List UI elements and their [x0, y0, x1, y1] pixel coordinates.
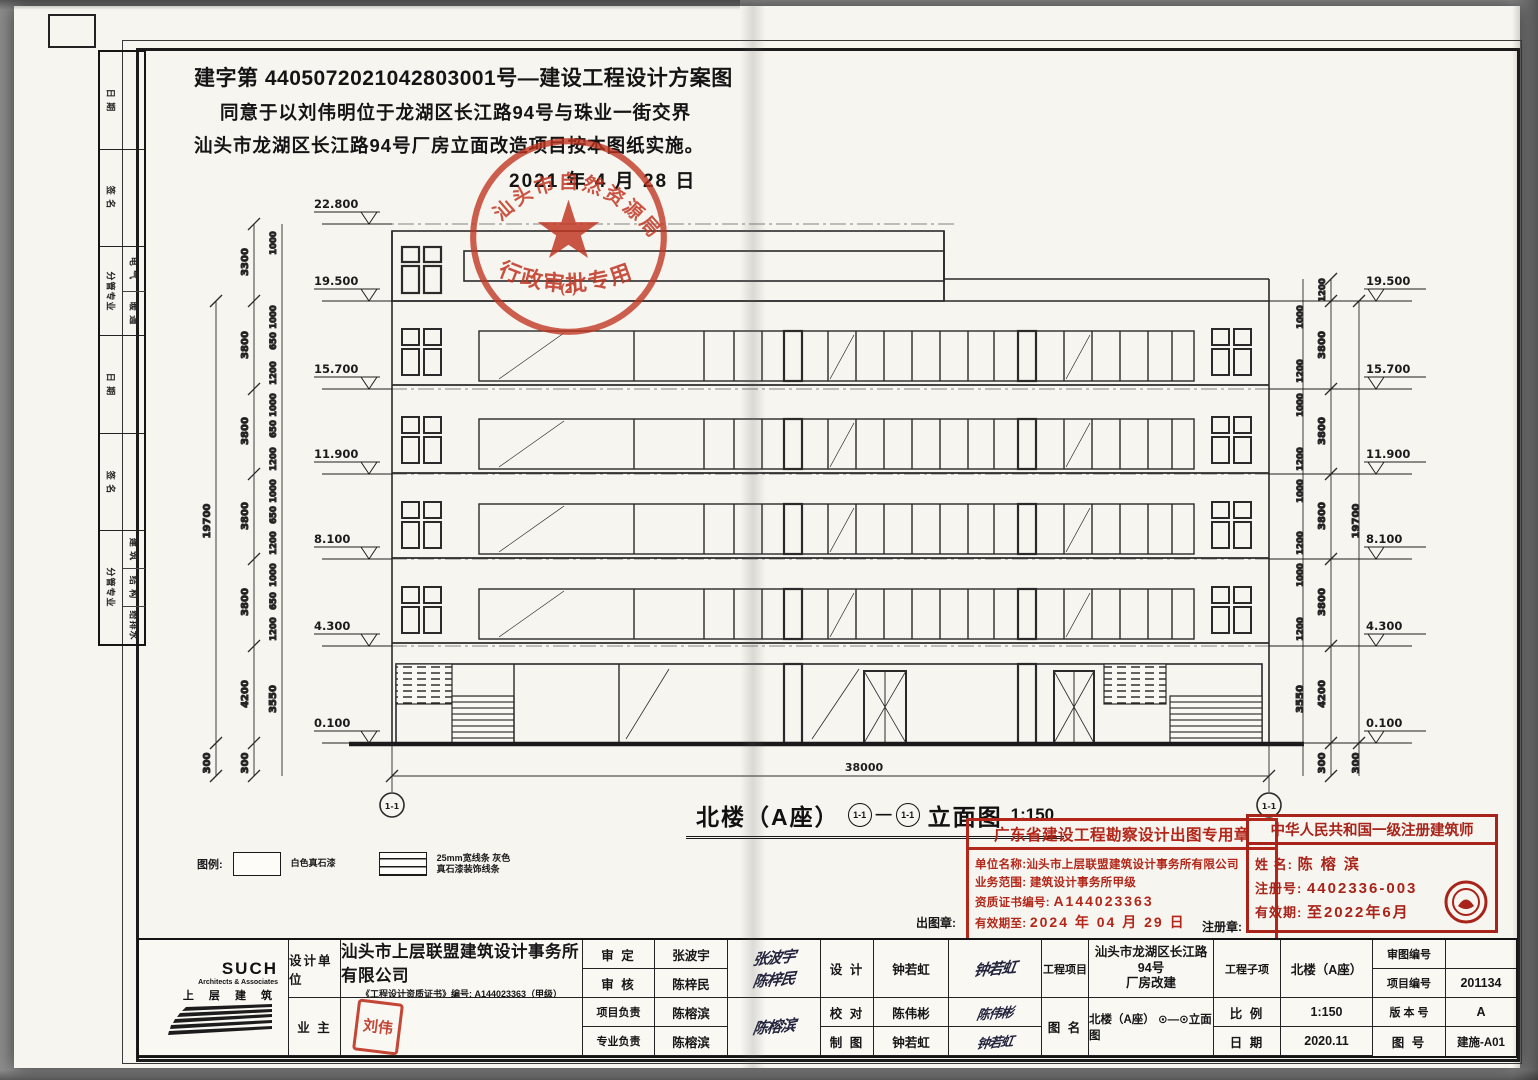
caption-name: 北楼（A座）	[696, 798, 840, 832]
arch-row-value: 陈 榕 滨	[1298, 856, 1361, 873]
review-no-label: 审图编号	[1373, 940, 1446, 969]
chutuzhang-label: 出图章:	[916, 914, 956, 931]
dim-text: 4200	[1317, 680, 1328, 708]
shending-name: 张波宇	[655, 940, 728, 969]
legend-title: 图例:	[197, 856, 223, 872]
sheet-no-label: 图 号	[1373, 1027, 1446, 1056]
dim-text: 1200	[269, 531, 279, 555]
level-text: 15.700	[314, 362, 358, 376]
level-markers-left: 22.800 19.500 15.700 11.900 8.100 4.300 …	[314, 197, 392, 743]
dim-text: 3800	[1317, 417, 1328, 445]
shenhe-name: 陈梓民	[655, 969, 728, 998]
axis-bubble-icon: 1-1	[896, 803, 920, 827]
strip-group-sign2: 签 名	[100, 434, 144, 532]
strip-label: 分管专业	[105, 568, 118, 608]
stamp-star-icon	[538, 200, 600, 258]
design-unit-label: 设计单位	[289, 940, 341, 998]
legend-label: 白色真石漆	[291, 858, 369, 869]
dim-text: 1000	[1296, 393, 1306, 417]
dim-text: 300	[1317, 753, 1328, 774]
strip-label: 签 名	[105, 186, 118, 210]
strip-group-date2: 日 期	[100, 336, 144, 434]
dim-text: 300	[202, 753, 213, 774]
figure-label: 图 名	[1042, 998, 1089, 1056]
elevation-drawing: 3300 3800 3800 3800 3800 4200 19700 3550…	[164, 191, 1434, 831]
caption-dash: —	[876, 806, 892, 824]
firm-logo: SUCH Architects & Associates 上 层 建 筑	[139, 940, 289, 1056]
project-no-value: 201134	[1446, 969, 1516, 998]
strip-item: 结 构	[128, 576, 141, 600]
gd-row-key: 有效期至:	[975, 918, 1026, 930]
dim-text: 1200	[1318, 278, 1328, 302]
dim-text: 300	[240, 753, 251, 774]
gd-stamp-title: 广东省建设工程勘察设计出图专用章	[966, 818, 1278, 850]
title-block: SUCH Architects & Associates 上 层 建 筑 设计单…	[137, 938, 1518, 1058]
version-value: A	[1446, 998, 1516, 1027]
logo-cn-text: 上 层 建 筑	[183, 987, 278, 1003]
scan-edge-top	[0, 0, 740, 10]
owner-label: 业 主	[289, 998, 341, 1056]
level-text: 0.100	[1366, 716, 1402, 730]
dim-text: 650	[269, 332, 279, 350]
xiangmu-label: 项目负责	[583, 998, 655, 1027]
signature: 钟若虹	[972, 956, 1017, 981]
arch-row-key: 有效期:	[1255, 905, 1302, 920]
gd-row-value: 汕头市上层联盟建筑设计事务所有限公司	[1026, 859, 1238, 871]
strip-group-sign: 签 名	[100, 150, 144, 248]
approval-line2: 同意于以刘伟明位于龙湖区长江路94号与珠业一街交界	[194, 99, 834, 125]
zhuanye-label: 专业负责	[583, 1027, 655, 1056]
registered-architect-stamp: 中华人民共和国一级注册建筑师 姓 名: 陈 榕 滨 注册号: 4402336-0…	[1246, 814, 1498, 933]
subproject-label: 工程子项	[1214, 940, 1281, 998]
strip-group-discipline-me: 分管专业 电 气 暖 通	[100, 247, 144, 336]
gd-row-key: 业务范围:	[975, 877, 1026, 889]
signature: 陈伟彬	[976, 1001, 1015, 1023]
shending-label: 审 定	[583, 940, 655, 969]
strip-item: 暖 通	[128, 302, 141, 326]
strip-label: 签 名	[105, 470, 118, 494]
zhuanye-name: 陈榕滨	[655, 1027, 728, 1056]
level-text: 15.700	[1366, 362, 1410, 376]
dim-text: 1000	[269, 393, 279, 417]
figure-value: 北楼（A座） ⊙—⊙立面图	[1089, 998, 1214, 1056]
dim-text: 1000	[269, 479, 279, 503]
architect-seal-emblem-icon	[1443, 879, 1489, 925]
dim-text: 1000	[1296, 305, 1306, 329]
left-dimensions: 3300 3800 3800 3800 3800 4200 19700 3550…	[202, 218, 282, 782]
version-label: 版 本 号	[1373, 998, 1446, 1027]
date-value: 2020.11	[1281, 1027, 1373, 1056]
level-text: 19.500	[314, 274, 358, 288]
date-label: 日 期	[1214, 1027, 1281, 1056]
svg-text:行政审批专用章: 行政审批专用章	[466, 134, 636, 296]
level-text: 8.100	[314, 532, 350, 546]
logo-building-icon	[168, 1003, 278, 1037]
dim-text: 1200	[1296, 531, 1306, 555]
gd-row-value: 2024 年 04 月 29 日	[1030, 914, 1186, 930]
floor-bands	[392, 329, 1269, 643]
dim-text: 650	[269, 592, 279, 610]
dim-text: 3800	[240, 417, 251, 445]
legend-label: 25mm宽线条 灰色真石漆装饰线条	[437, 853, 515, 876]
stamp-arc-bottom-text: 行政审批专用章	[466, 134, 636, 296]
strip-item: 电 气	[128, 257, 141, 281]
material-legend: 图例: 白色真石漆 25mm宽线条 灰色真石漆装饰线条	[197, 852, 515, 876]
design-unit-cert: 《工程设计资质证书》编号: A144023363（甲级）	[361, 987, 562, 999]
owner-cell: 刘伟	[341, 998, 583, 1056]
subproject-value: 北楼（A座）	[1281, 940, 1373, 998]
dim-text: 1200	[269, 361, 279, 385]
dim-text: 1000	[269, 563, 279, 587]
dim-text: 19700	[202, 504, 213, 539]
axis-bubble-text: 1-1	[1262, 802, 1277, 811]
dim-text: 1200	[1296, 617, 1306, 641]
approval-number-line: 建字第 4405072021042803001号—建设工程设计方案图	[194, 62, 834, 92]
sheji-label: 设 计	[821, 940, 874, 998]
owner-red-seal: 刘伟	[352, 998, 404, 1055]
dim-text: 300	[1351, 753, 1362, 774]
legend-swatch-plain	[233, 852, 281, 876]
project-line2: 厂房改建	[1089, 976, 1213, 992]
review-no-value	[1446, 940, 1516, 969]
signature: 钟若虹	[976, 1030, 1015, 1052]
jiaodui-name: 陈伟彬	[874, 998, 949, 1027]
level-text: 11.900	[314, 447, 358, 461]
dim-text: 38000	[845, 761, 884, 774]
dim-text: 650	[269, 506, 279, 524]
shenhe-label: 审 核	[583, 969, 655, 998]
xiangmu-name: 陈榕滨	[655, 998, 728, 1027]
dim-text: 1000	[1296, 479, 1306, 503]
level-text: 22.800	[314, 197, 358, 211]
stamp-sub-mark: (2)	[560, 281, 576, 296]
admin-approval-round-stamp-icon: 汕头市自然资源局 行政审批专用章 (2)	[466, 134, 671, 339]
scale-value: 1:150	[1281, 998, 1373, 1027]
strip-group-date: 日 期	[100, 52, 144, 150]
design-unit-name: 汕头市上层联盟建筑设计事务所有限公司	[341, 940, 582, 986]
logo-brand-text: SUCH	[222, 959, 278, 979]
project-no-label: 项目编号	[1373, 969, 1446, 998]
strip-label: 分管专业	[105, 271, 118, 311]
level-text: 0.100	[314, 716, 350, 730]
signature-cell: 钟若虹	[949, 1027, 1042, 1056]
arch-row-value: 4402336-003	[1307, 880, 1417, 897]
dim-text: 3800	[1317, 502, 1328, 530]
dim-text: 3300	[240, 248, 251, 276]
dim-text: 4200	[240, 680, 251, 708]
zhitu-label: 制 图	[821, 1027, 874, 1056]
dim-text: 1000	[269, 231, 279, 255]
dim-text: 1200	[1296, 447, 1306, 471]
dim-text: 1200	[269, 617, 279, 641]
jiaodui-label: 校 对	[821, 998, 874, 1027]
project-label: 工程项目	[1042, 940, 1089, 998]
strip-label: 日 期	[105, 373, 118, 397]
level-text: 8.100	[1366, 532, 1402, 546]
dim-text: 1200	[269, 447, 279, 471]
dim-text: 1000	[1296, 563, 1306, 587]
design-unit-cell: 汕头市上层联盟建筑设计事务所有限公司 《工程设计资质证书》编号: A144023…	[341, 940, 583, 998]
scan-edge-bottom	[0, 1070, 1538, 1080]
level-text: 11.900	[1366, 447, 1410, 461]
dim-text: 19700	[1351, 504, 1362, 539]
strip-label: 日 期	[105, 88, 118, 112]
signature-cell: 陈伟彬	[949, 998, 1042, 1027]
strip-group-discipline-asp: 分管专业 建 筑 结 构 给排水	[100, 531, 144, 644]
arch-stamp-title: 中华人民共和国一级注册建筑师	[1246, 814, 1498, 845]
ground-floor	[349, 664, 1304, 744]
logo-sub-text: Architects & Associates	[198, 979, 278, 986]
level-text: 4.300	[1366, 619, 1402, 633]
right-dimensions: 1200 3800 3800 3800 3800 4200 19700 3550…	[1295, 273, 1365, 782]
legend-swatch-lined	[379, 852, 427, 876]
level-markers-right: 19.500 15.700 11.900 8.100 4.300 0.100	[1269, 274, 1426, 743]
axis-bubble-text: 1-1	[385, 802, 400, 811]
zhitu-name: 钟若虹	[874, 1027, 949, 1056]
project-value: 汕头市龙湖区长江路94号厂房改建	[1089, 940, 1214, 998]
gd-design-issue-stamp: 广东省建设工程勘察设计出图专用章 单位名称:汕头市上层联盟建筑设计事务所有限公司…	[966, 818, 1278, 942]
level-text: 19.500	[1366, 274, 1410, 288]
arch-row-value: 至2022年6月	[1307, 904, 1410, 921]
gd-row-key: 资质证书编号:	[975, 897, 1050, 909]
dim-text: 3800	[1317, 331, 1328, 359]
scanned-sheet-stage: { "approval": { "line1": "建字第 4405072021…	[0, 0, 1538, 1080]
binding-signature-strip: 日 期 签 名 分管专业 电 气 暖 通 日 期 签 名 分管专业 建 筑 结 …	[98, 50, 146, 646]
scale-label: 比 例	[1214, 998, 1281, 1027]
gd-row-key: 单位名称:	[975, 859, 1026, 871]
dim-text: 650	[269, 420, 279, 438]
dim-text: 3550	[1295, 685, 1306, 713]
dim-text: 1000	[269, 305, 279, 329]
dim-text: 3800	[240, 588, 251, 616]
sheji-name: 钟若虹	[874, 940, 949, 998]
dim-text: 3550	[268, 685, 279, 713]
arch-row-key: 姓 名:	[1255, 857, 1293, 872]
sheet-no-value: 建施-A01	[1446, 1027, 1516, 1056]
gd-row-value: A144023363	[1053, 893, 1153, 909]
gd-row-value: 建筑设计事务所甲级	[1030, 877, 1136, 889]
page-fold-shading	[740, 6, 766, 1068]
dim-text: 3800	[240, 331, 251, 359]
signature-cell: 钟若虹	[949, 940, 1042, 998]
paper-sheet: { "approval": { "line1": "建字第 4405072021…	[14, 6, 1520, 1068]
axis-bubble-icon: 1-1	[848, 803, 872, 827]
strip-item: 给排水	[128, 611, 141, 641]
project-line1: 汕头市龙湖区长江路94号	[1089, 945, 1213, 976]
strip-item: 建 筑	[128, 538, 141, 562]
corner-fold-box	[48, 14, 96, 48]
dim-text: 1200	[1296, 359, 1306, 383]
dim-text: 3800	[240, 502, 251, 530]
level-text: 4.300	[314, 619, 350, 633]
arch-row-key: 注册号:	[1255, 881, 1302, 896]
dim-text: 3800	[1317, 588, 1328, 616]
